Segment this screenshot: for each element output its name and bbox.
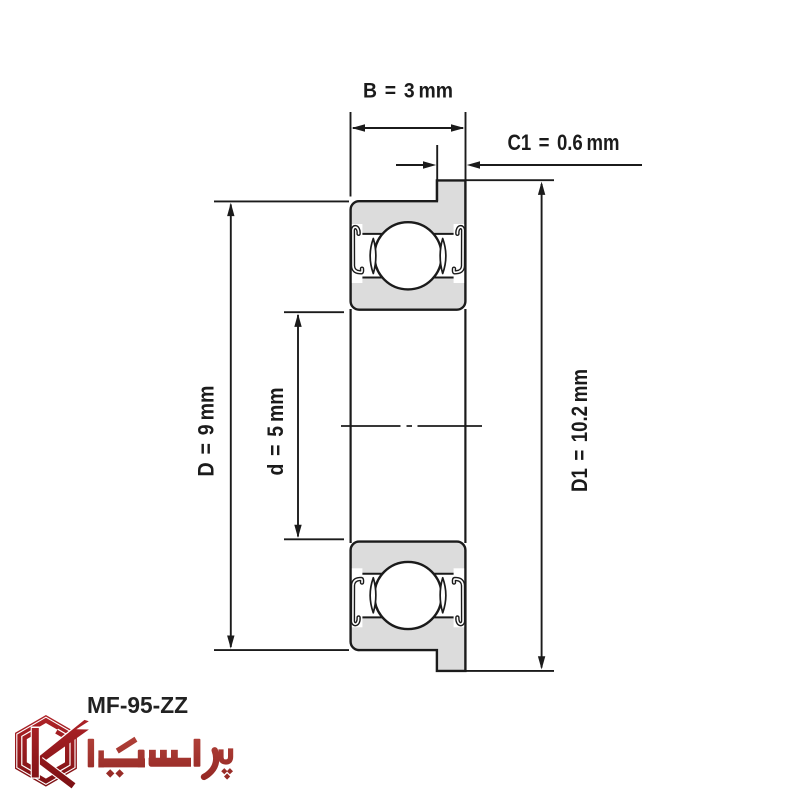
svg-text:B = 3 mm: B = 3 mm bbox=[363, 79, 453, 103]
svg-text:D = 9 mm: D = 9 mm bbox=[194, 386, 219, 477]
svg-text:d = 5 mm: d = 5 mm bbox=[263, 388, 288, 476]
svg-text:C1 = 0.6 mm: C1 = 0.6 mm bbox=[508, 130, 620, 155]
svg-text:D1 = 10.2 mm: D1 = 10.2 mm bbox=[567, 369, 592, 492]
svg-text:MF-95-ZZ: MF-95-ZZ bbox=[87, 692, 188, 718]
